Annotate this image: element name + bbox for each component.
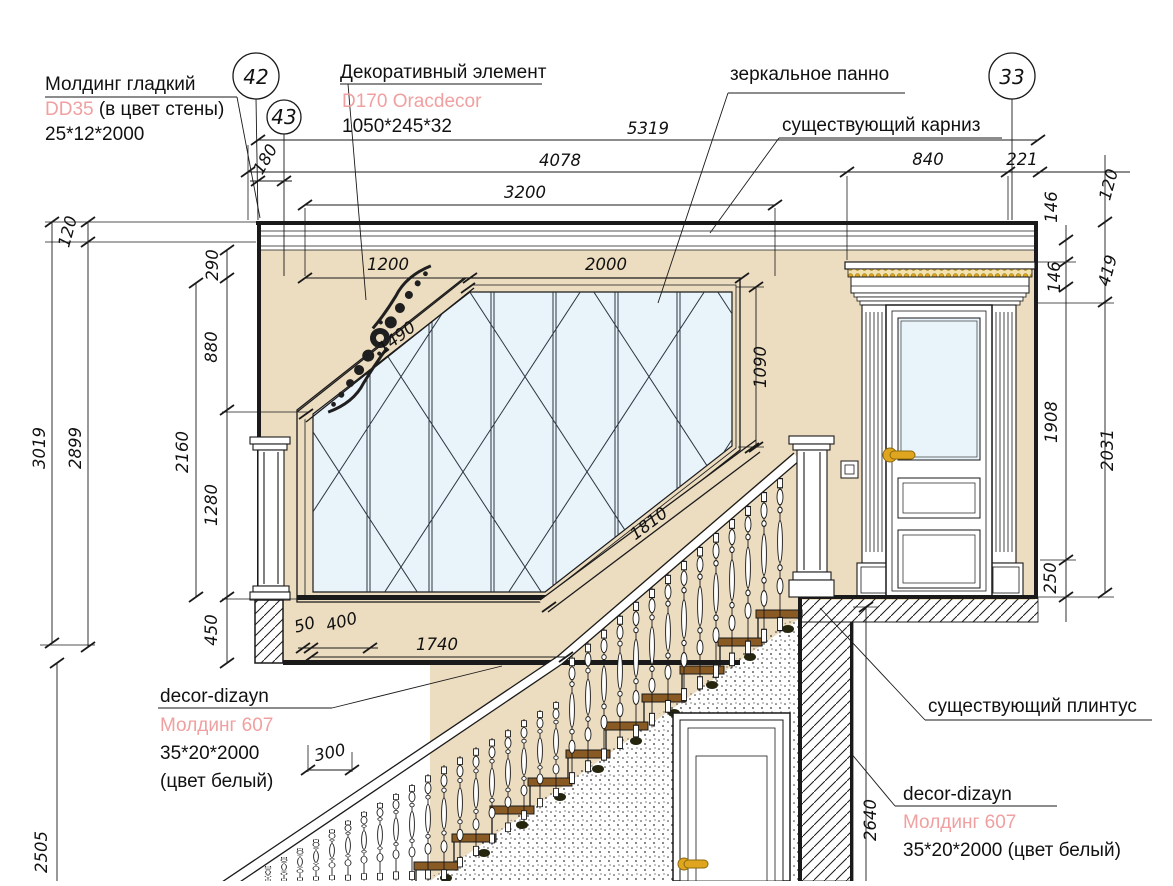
main-door <box>845 262 1035 597</box>
axis-42: 42 <box>243 65 268 89</box>
dim-290: 290 <box>203 249 222 281</box>
elevation-drawing: 5319 4078 840 221 180 3200 1200 2000 109… <box>0 0 1173 881</box>
mirror-sill <box>297 595 552 600</box>
dim-4078: 4078 <box>539 151 581 170</box>
dim-146-b: 146 <box>1045 261 1064 293</box>
callout-molding-left-size: 35*20*2000 <box>160 743 259 764</box>
dim-2160: 2160 <box>173 431 192 473</box>
callout-decorative-code: D170 Oracdecor <box>342 91 482 112</box>
floor-line <box>283 660 740 665</box>
dim-840: 840 <box>912 150 944 169</box>
callout-decorative-size: 1050*245*32 <box>342 116 452 137</box>
molding-top-code: DD35 <box>45 99 94 120</box>
callout-molding-left-color: (цвет белый) <box>160 771 273 792</box>
dim-880: 880 <box>202 331 221 363</box>
dim-2505: 2505 <box>32 831 51 873</box>
dim-2031: 2031 <box>1098 429 1117 471</box>
dim-250: 250 <box>1041 562 1060 594</box>
dim-221: 221 <box>1006 150 1038 169</box>
understair-door-handle <box>678 858 708 870</box>
door-entablature <box>845 262 1035 305</box>
existing-cornice-band <box>256 221 1038 250</box>
gold-dentil-strip <box>848 269 1032 277</box>
axis-43: 43 <box>271 105 296 129</box>
wall-right-edge <box>1034 221 1038 598</box>
dim-1908: 1908 <box>1042 401 1061 443</box>
wall-section-left <box>255 600 283 663</box>
dim-3200: 3200 <box>504 183 546 202</box>
dim-2000: 2000 <box>585 255 627 274</box>
callout-molding-left-code: Молдинг 607 <box>160 715 273 736</box>
dim-1200: 1200 <box>367 255 409 274</box>
callout-decorative-title: Декоративный элемент <box>340 62 547 83</box>
callout-mirror: зеркальное панно <box>730 64 889 85</box>
dim-1280: 1280 <box>202 484 221 526</box>
molding-top-code-suffix: (в цвет стены) <box>94 99 225 120</box>
callout-molding-top-size: 25*12*2000 <box>45 124 144 145</box>
dim-450: 450 <box>202 614 221 646</box>
light-switch <box>841 461 858 478</box>
callout-plinth: существующий плинтус <box>928 696 1137 717</box>
callout-molding-right-size: 35*20*2000 (цвет белый) <box>903 840 1121 861</box>
callout-molding-left-brand: decor-dizayn <box>160 686 269 707</box>
dim-1740: 1740 <box>416 635 458 654</box>
axis-33: 33 <box>999 65 1024 89</box>
callout-molding-right-code: Молдинг 607 <box>903 812 1016 833</box>
dim-2640: 2640 <box>861 799 880 841</box>
dim-2899: 2899 <box>66 427 85 469</box>
wall-section-right <box>798 598 853 881</box>
dim-5319: 5319 <box>627 119 669 138</box>
callout-cornice: существующий карниз <box>782 115 980 136</box>
dim-1090: 1090 <box>751 346 770 388</box>
callout-molding-top-code: DD35 (в цвет стены) <box>45 99 224 120</box>
callout-molding-top-title: Молдинг гладкий <box>45 74 195 95</box>
understair-door <box>673 713 790 881</box>
dim-3019: 3019 <box>30 427 49 469</box>
dim-146-a: 146 <box>1042 191 1061 223</box>
door-glass <box>898 318 980 460</box>
callout-molding-right-brand: decor-dizayn <box>903 784 1012 805</box>
landing-floor-section <box>798 595 1038 622</box>
